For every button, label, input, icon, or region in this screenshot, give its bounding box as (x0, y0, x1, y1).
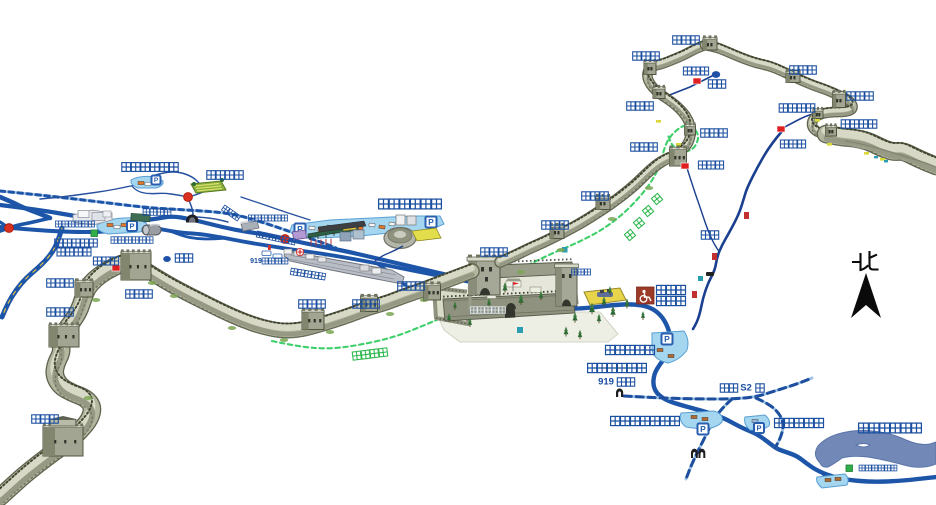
svg-text:P: P (664, 334, 670, 344)
svg-text:P: P (129, 221, 134, 230)
svg-text:P: P (154, 177, 159, 184)
svg-text:S2: S2 (740, 383, 752, 394)
svg-text:P: P (756, 423, 761, 432)
svg-text:919: 919 (250, 258, 262, 265)
svg-text:P: P (428, 217, 434, 227)
svg-text:P: P (700, 424, 706, 434)
svg-text:919: 919 (598, 377, 614, 388)
